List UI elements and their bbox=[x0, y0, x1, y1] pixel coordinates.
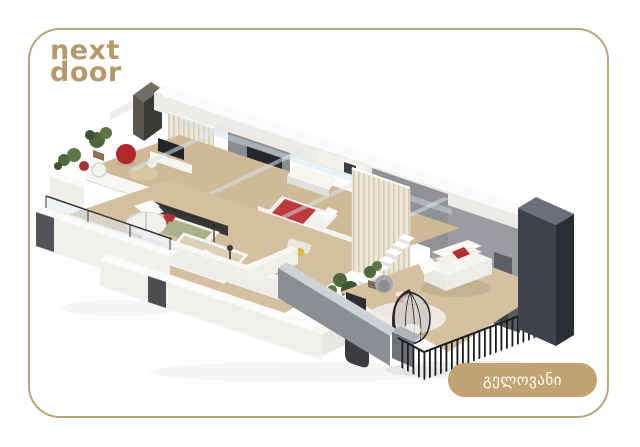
location-badge-label: გელოვანი bbox=[483, 371, 562, 389]
red-bean-bag bbox=[116, 144, 136, 164]
brand-logo: next door bbox=[50, 40, 122, 84]
page-background: { "page": { "background_color": "#ffffff… bbox=[0, 0, 640, 447]
plant-pot bbox=[93, 150, 104, 161]
brand-logo-line2: door bbox=[50, 62, 122, 84]
location-badge[interactable]: გელოვანი bbox=[448, 363, 597, 397]
basket-chair bbox=[92, 163, 106, 177]
dark-slab bbox=[518, 197, 574, 346]
listing-card: next door bbox=[28, 28, 609, 418]
